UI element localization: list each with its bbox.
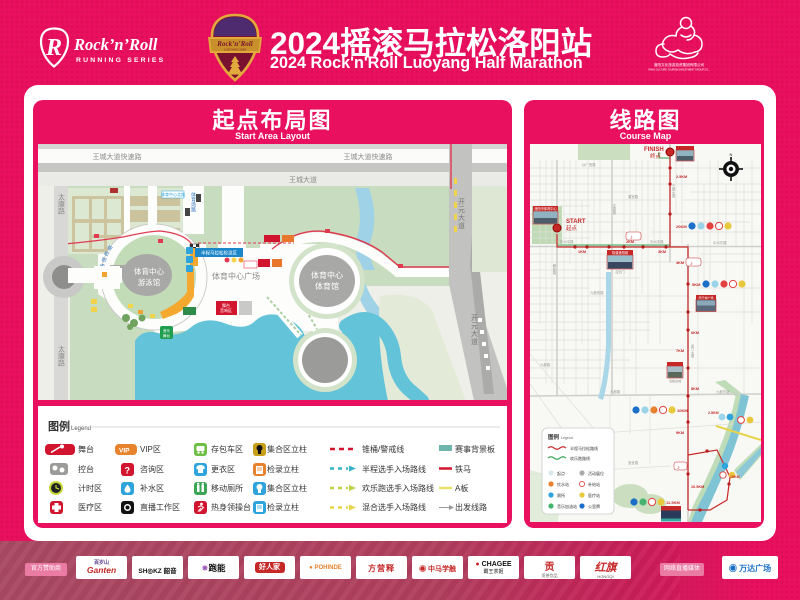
svg-text:集合区立柱: 集合区立柱 (267, 483, 307, 493)
svg-text:应天门: 应天门 (615, 269, 624, 274)
svg-text:7KM: 7KM (676, 349, 684, 353)
svg-text:热身领操台: 热身领操台 (211, 502, 251, 512)
svg-text:图例: 图例 (548, 433, 560, 441)
svg-text:唐宫路: 唐宫路 (628, 194, 639, 199)
svg-text:移动厕所: 移动厕所 (211, 483, 243, 493)
svg-text:体育中心北路: 体育中心北路 (161, 191, 185, 197)
svg-text:活动展位: 活动展位 (588, 470, 604, 476)
svg-text:♪: ♪ (630, 235, 633, 241)
svg-text:太康路: 太康路 (58, 193, 66, 216)
svg-text:王城大道: 王城大道 (671, 184, 675, 198)
svg-text:中州东路: 中州东路 (713, 240, 727, 245)
svg-text:6KM: 6KM (691, 331, 699, 335)
svg-text:R: R (45, 35, 62, 61)
svg-text:龙门大道: 龙门大道 (690, 343, 694, 358)
svg-text:♪: ♪ (690, 261, 693, 267)
svg-text:10.5KM: 10.5KM (691, 485, 704, 489)
svg-text:2.5KM: 2.5KM (676, 175, 687, 179)
svg-text:8KM: 8KM (691, 387, 699, 391)
svg-text:定鼎路: 定鼎路 (612, 203, 616, 215)
svg-text:10KM: 10KM (677, 408, 688, 413)
svg-text:体育中心广场: 体育中心广场 (212, 271, 260, 281)
svg-text:中州中路: 中州中路 (560, 239, 574, 244)
svg-text:混合选手入场路线: 混合选手入场路线 (362, 502, 426, 512)
svg-text:更衣区: 更衣区 (211, 464, 235, 474)
svg-text:医疗区: 医疗区 (78, 502, 102, 512)
svg-text:体育馆: 体育馆 (315, 281, 339, 291)
svg-text:体育中心: 体育中心 (134, 266, 164, 276)
svg-text:检录立柱: 检录立柱 (267, 502, 299, 512)
svg-text:饮水站: 饮水站 (557, 481, 569, 487)
svg-text:起点: 起点 (557, 470, 565, 476)
svg-text:半程选手入场路线: 半程选手入场路线 (362, 464, 426, 474)
svg-text:王城大道快速路: 王城大道快速路 (93, 152, 142, 161)
svg-text:欢乐跑路线: 欢乐跑路线 (570, 455, 590, 461)
svg-text:锥桶/警戒线: 锥桶/警戒线 (362, 444, 404, 454)
svg-text:直播工作区: 直播工作区 (140, 502, 180, 512)
svg-text:体育中心: 体育中心 (311, 270, 343, 280)
svg-text:存包车区: 存包车区 (211, 444, 243, 454)
svg-text:计时区: 计时区 (78, 483, 102, 493)
svg-text:九都路: 九都路 (540, 362, 551, 367)
svg-text:洛宜路: 洛宜路 (628, 460, 639, 465)
svg-text:游泳馆: 游泳馆 (138, 277, 161, 287)
svg-text:起点: 起点 (566, 225, 578, 232)
svg-text:厕所: 厕所 (557, 492, 565, 498)
svg-text:N: N (730, 152, 733, 157)
svg-text:9KM: 9KM (676, 431, 684, 435)
svg-text:医疗站: 医疗站 (588, 492, 600, 498)
svg-text:图例: 图例 (48, 419, 70, 433)
svg-text:开元大道: 开元大道 (458, 198, 466, 230)
svg-text:RUNNING SERIES: RUNNING SERIES (76, 57, 165, 64)
svg-text:九都西路: 九都西路 (590, 290, 604, 295)
svg-text:洛阳市体育中心: 洛阳市体育中心 (534, 206, 557, 211)
svg-text:半程马拉松路线: 半程马拉松路线 (570, 445, 598, 451)
svg-text:开元大道: 开元大道 (471, 314, 479, 346)
svg-text:九都东路: 九都东路 (716, 389, 730, 394)
svg-text:解放路: 解放路 (552, 263, 556, 275)
svg-text:Rock’n’Roll: Rock’n’Roll (73, 35, 158, 54)
svg-text:公里牌: 公里牌 (588, 503, 600, 509)
svg-text:5KM: 5KM (692, 282, 701, 287)
svg-text:集合区立柱: 集合区立柱 (267, 444, 307, 454)
svg-text:欢乐跑选手入场路线: 欢乐跑选手入场路线 (362, 483, 434, 493)
svg-text:王城大道快速路: 王城大道快速路 (344, 152, 393, 161)
svg-text:?: ? (125, 466, 131, 476)
svg-text:11.5KM: 11.5KM (666, 500, 680, 505)
svg-text:王城大道: 王城大道 (289, 175, 317, 184)
svg-text:检录立柱: 检录立柱 (267, 464, 299, 474)
svg-text:咨询区: 咨询区 (140, 464, 164, 474)
svg-text:出发线路: 出发线路 (455, 502, 487, 512)
svg-text:音乐加油站: 音乐加油站 (557, 503, 577, 509)
svg-text:音响区: 音响区 (220, 307, 232, 313)
svg-text:赛事背景板: 赛事背景板 (455, 444, 495, 454)
svg-text:控台: 控台 (78, 464, 94, 474)
svg-text:1KM: 1KM (578, 250, 586, 254)
svg-text:中州中路: 中州中路 (650, 239, 664, 244)
svg-text:4KM: 4KM (676, 261, 684, 265)
svg-text:补水区: 补水区 (140, 483, 164, 493)
svg-text:20KM: 20KM (676, 224, 687, 229)
svg-text:洛阳文化旅游投资集团有限公司: 洛阳文化旅游投资集团有限公司 (654, 62, 705, 67)
svg-text:VIP: VIP (119, 448, 130, 455)
svg-text:3KM: 3KM (658, 250, 666, 254)
svg-text:洛邑古城: 洛邑古城 (669, 378, 681, 383)
svg-text:♪: ♪ (677, 465, 680, 471)
svg-text:LUOYANG 2024: LUOYANG 2024 (224, 48, 246, 52)
svg-text:舞台: 舞台 (163, 333, 170, 338)
svg-text:铁马: 铁马 (455, 464, 471, 474)
svg-text:A板: A板 (455, 483, 468, 493)
svg-text:舞台: 舞台 (78, 444, 94, 454)
svg-text:15KM: 15KM (730, 475, 740, 479)
svg-text:体育场路: 体育场路 (190, 191, 196, 213)
svg-text:九都路: 九都路 (610, 389, 621, 394)
svg-text:FINISH: FINISH (644, 147, 664, 153)
svg-text:2.5KM: 2.5KM (708, 411, 719, 415)
svg-text:VIP区: VIP区 (140, 445, 161, 454)
svg-text:太康路: 太康路 (58, 345, 66, 368)
svg-text:终点: 终点 (650, 152, 662, 160)
svg-text:START: START (566, 219, 586, 225)
svg-text:LUOYANG CULTURE TOURISM INVEST: LUOYANG CULTURE TOURISM INVESTMENT GROUP… (648, 69, 710, 72)
svg-text:Legend: Legend (561, 436, 573, 440)
svg-text:音乐: 音乐 (163, 328, 170, 333)
svg-text:隋唐洛阳城: 隋唐洛阳城 (612, 250, 629, 255)
svg-text:补给站: 补给站 (588, 481, 600, 487)
svg-text:纱厂西路: 纱厂西路 (582, 162, 596, 167)
svg-text:半程马拉松检录区: 半程马拉松检录区 (201, 250, 237, 257)
